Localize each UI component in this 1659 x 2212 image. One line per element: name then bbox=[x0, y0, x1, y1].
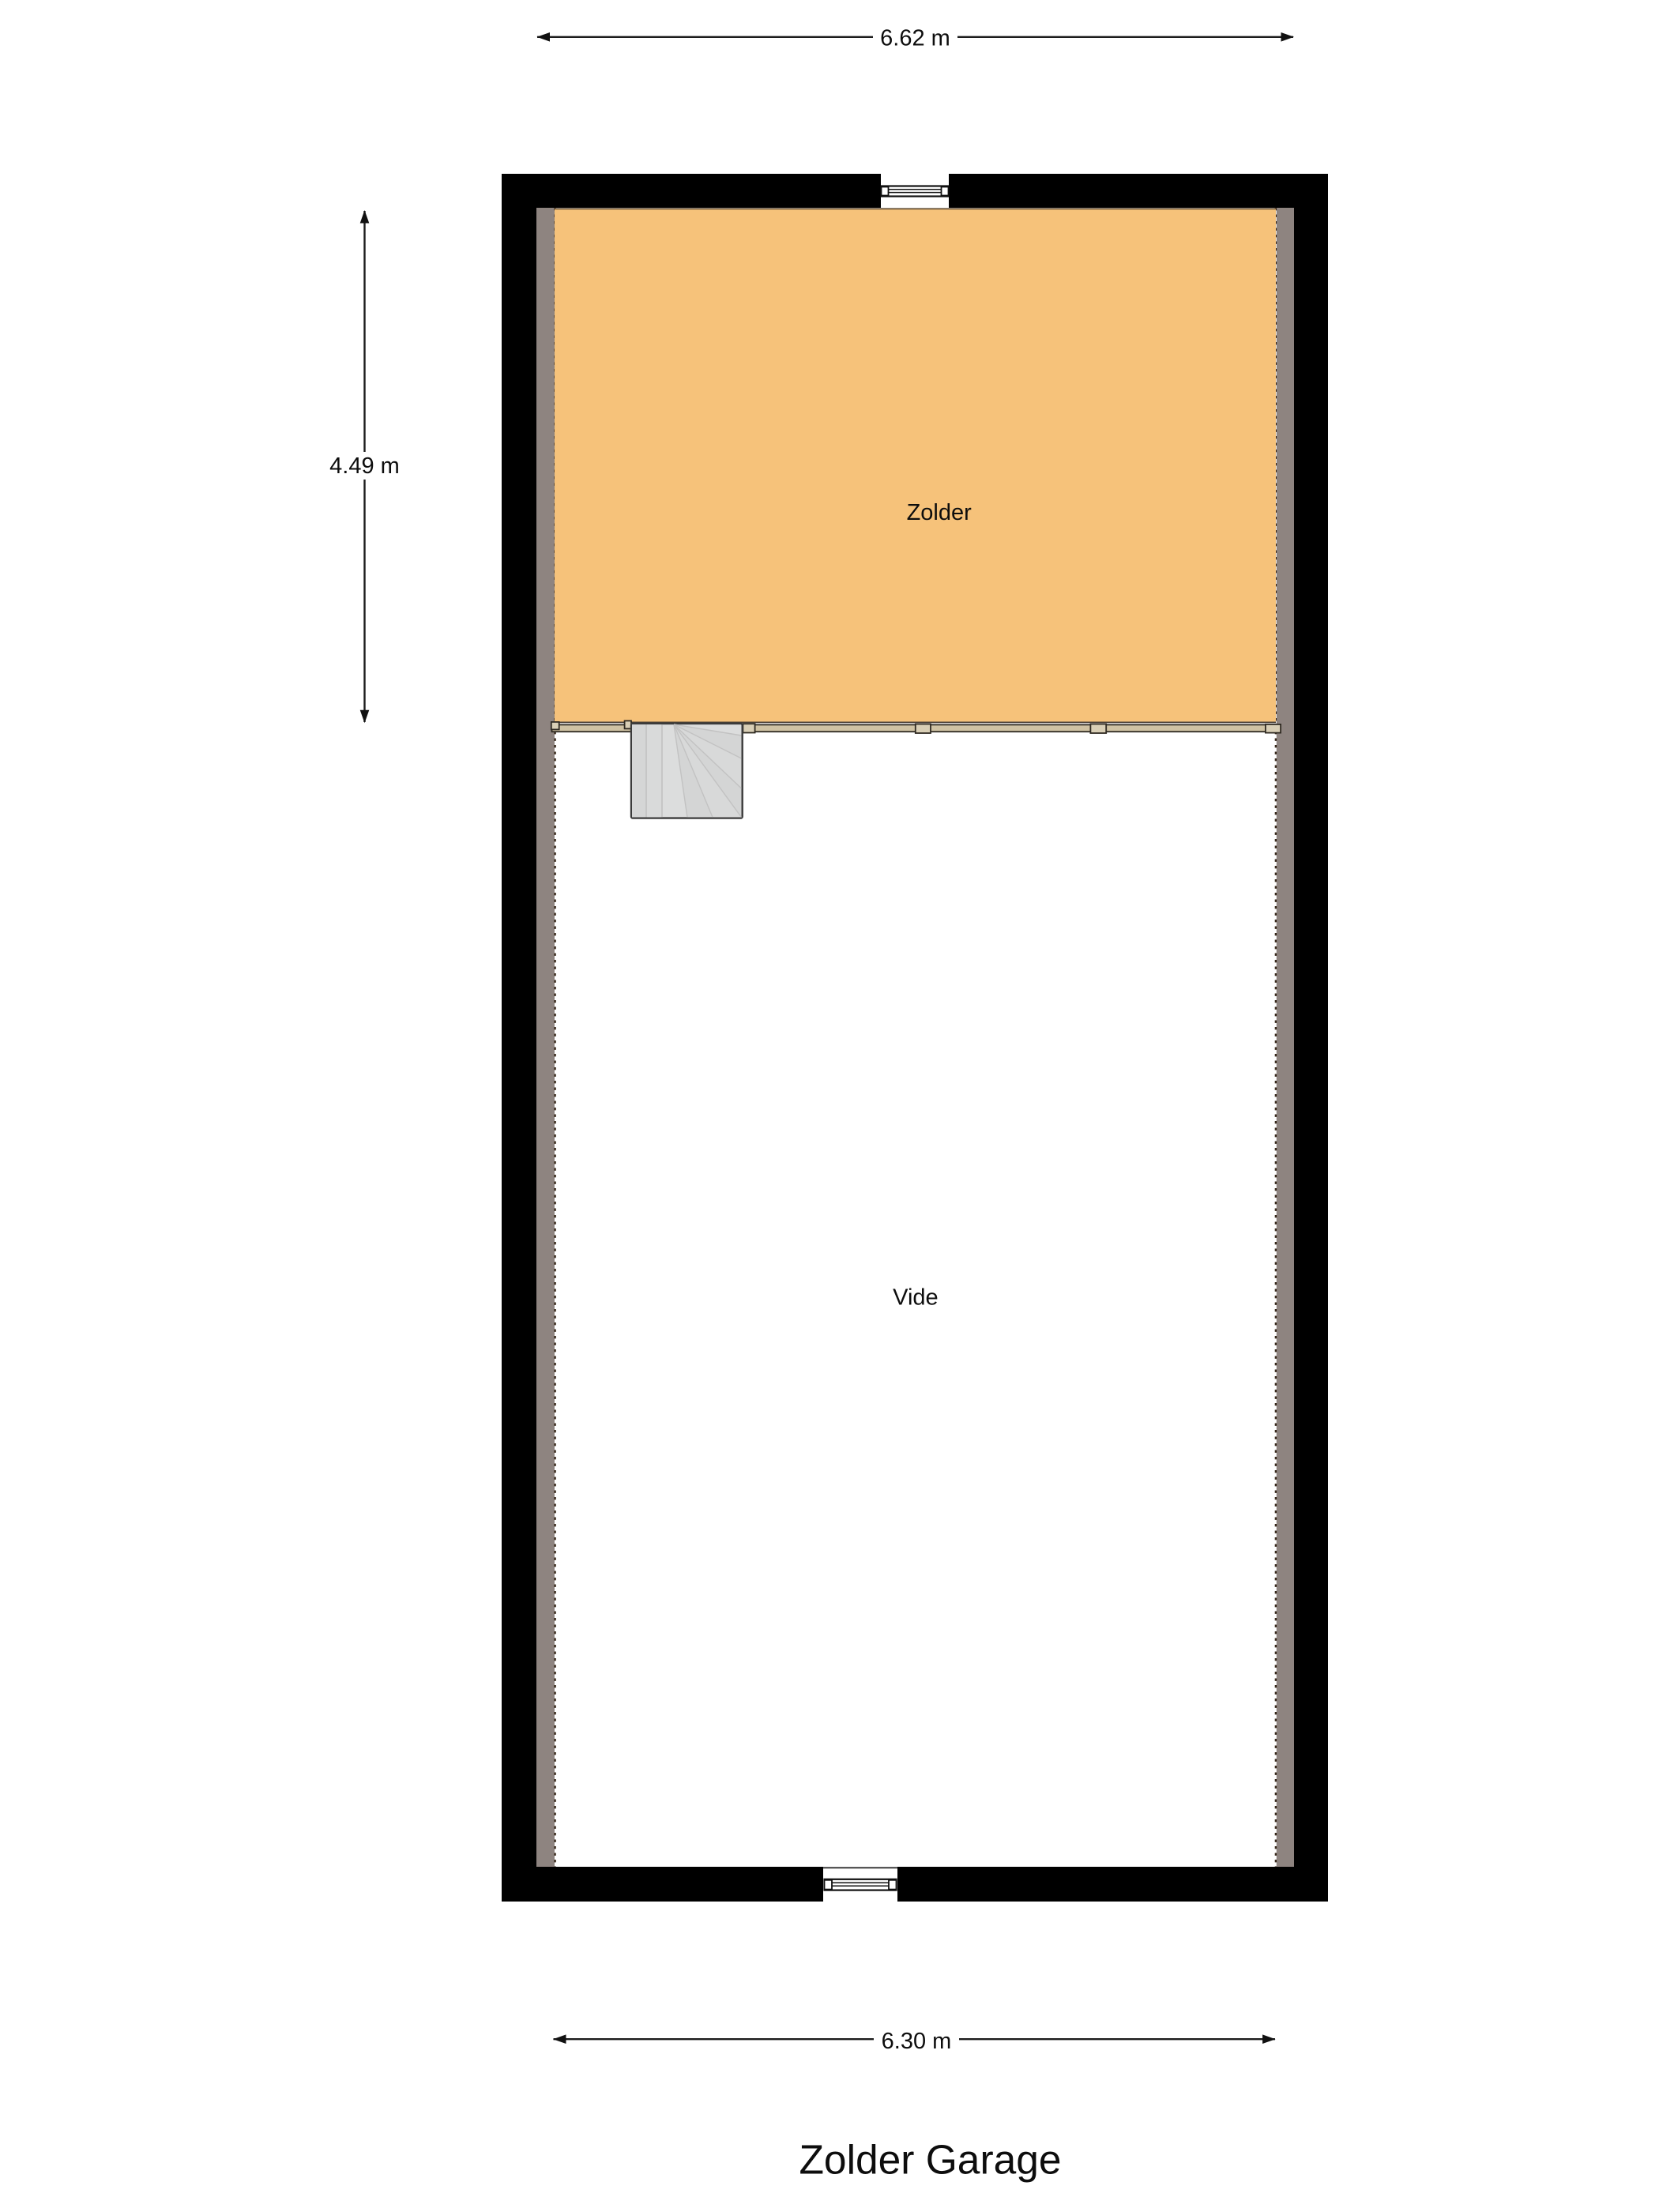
svg-text:Zolder Garage: Zolder Garage bbox=[799, 2137, 1061, 2183]
svg-text:4.49 m: 4.49 m bbox=[329, 453, 400, 479]
svg-text:6.30 m: 6.30 m bbox=[882, 2029, 952, 2054]
svg-text:Vide: Vide bbox=[893, 1285, 939, 1311]
svg-text:Zolder: Zolder bbox=[907, 500, 972, 525]
svg-text:6.62 m: 6.62 m bbox=[880, 26, 950, 51]
